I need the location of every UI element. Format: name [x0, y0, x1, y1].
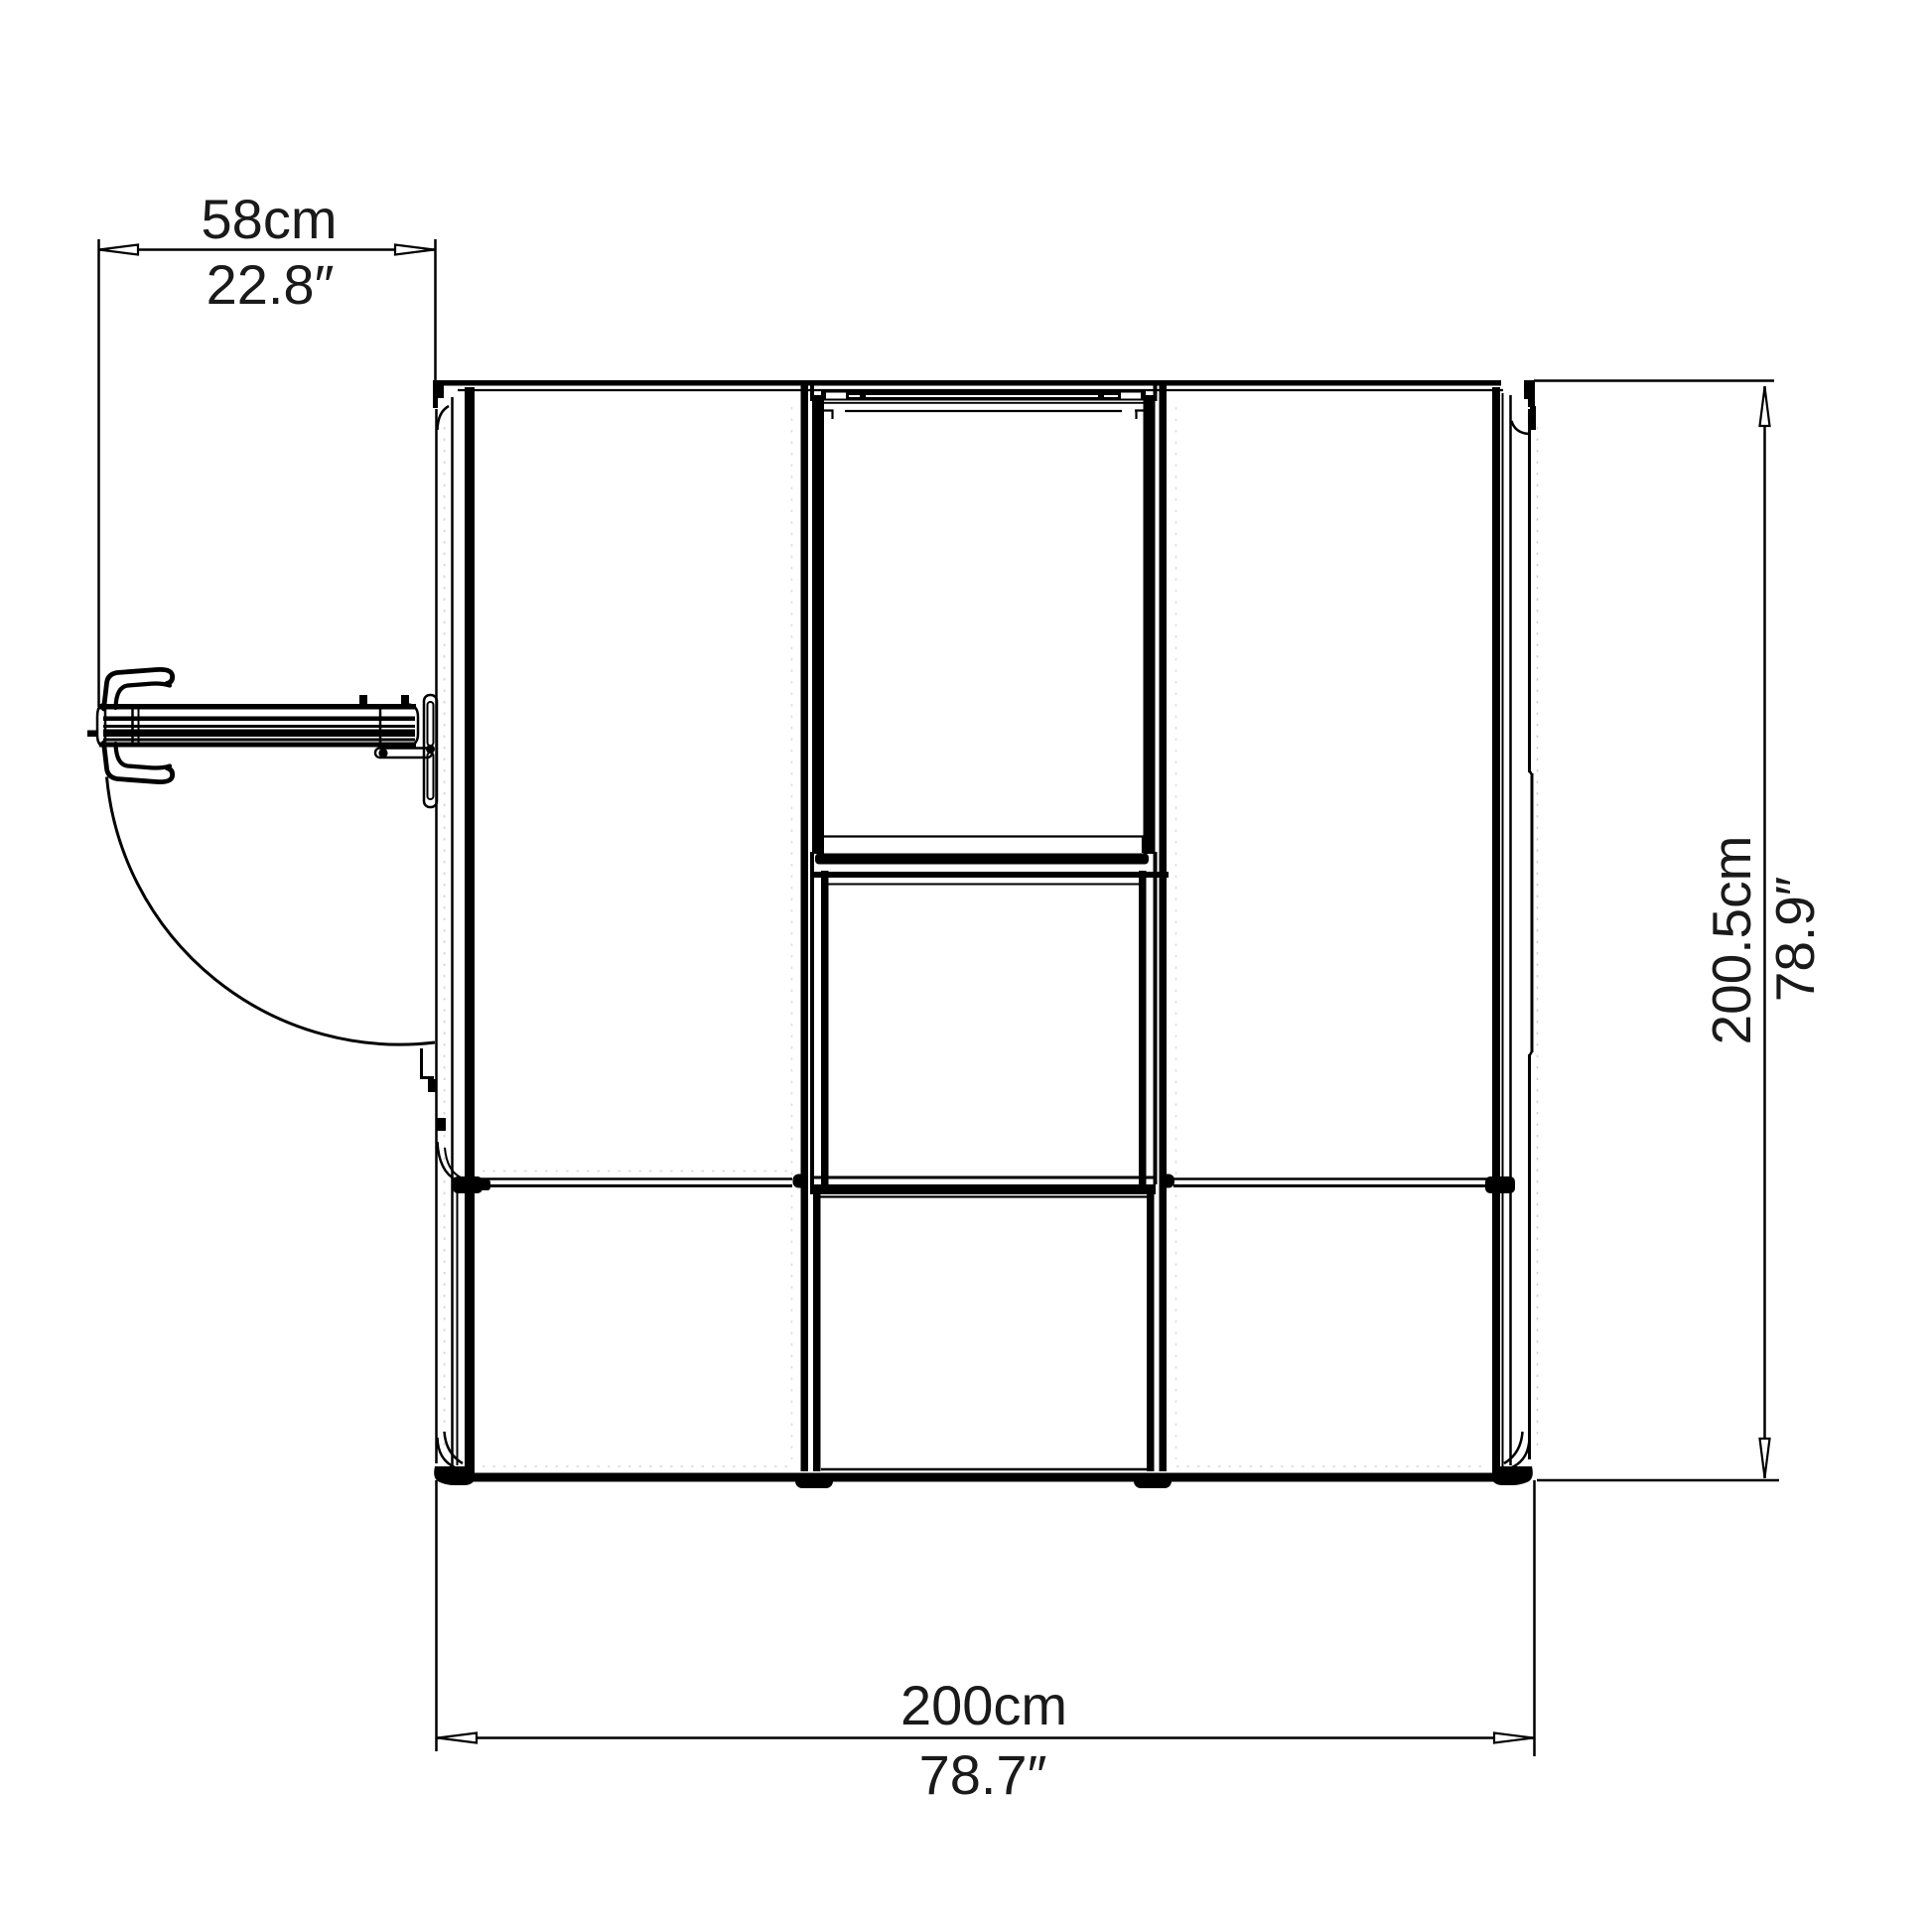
svg-text:78.9″: 78.9″ [1764, 877, 1826, 1003]
svg-text:200cm: 200cm [900, 1674, 1067, 1736]
svg-text:22.8″: 22.8″ [207, 253, 335, 316]
svg-text:78.7″: 78.7″ [919, 1743, 1047, 1806]
svg-text:200.5cm: 200.5cm [1701, 836, 1762, 1045]
svg-text:58cm: 58cm [202, 188, 338, 250]
